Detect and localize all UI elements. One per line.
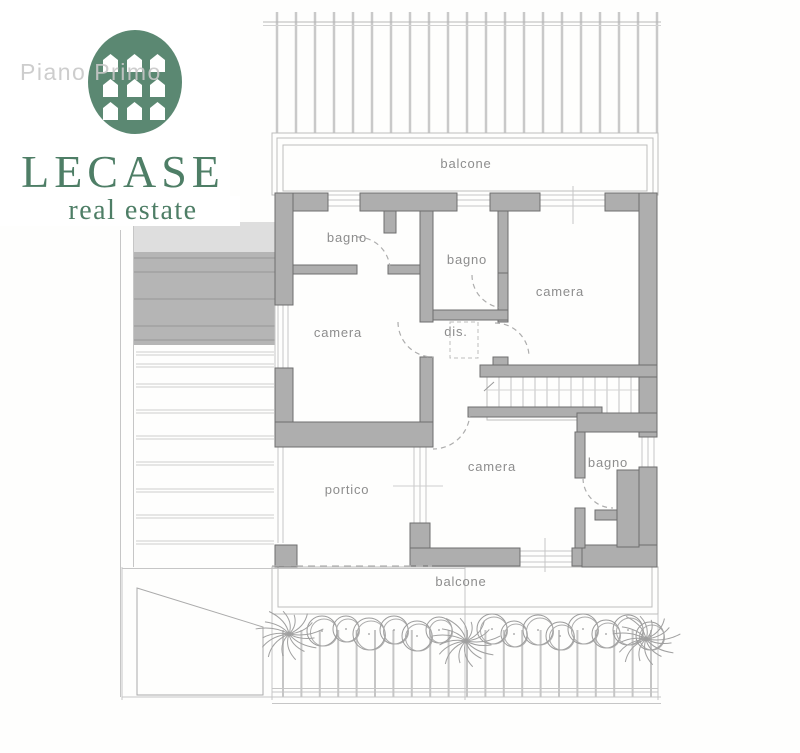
room-label-bagno-top-left: bagno [327,230,367,245]
room-label-balcone-top: balcone [440,156,491,171]
room-label-balcone-bottom: balcone [435,574,486,589]
brand-name: LECASE [21,146,225,197]
room-label-portico: portico [325,482,370,497]
brand-tagline: real estate [68,195,197,226]
room-label-bagno-top-mid: bagno [447,252,487,267]
floorplan-svg: balcone bagno bagno camera camera dis. c… [0,0,800,753]
room-label-dis: dis. [444,324,467,339]
room-label-camera-left: camera [314,325,362,340]
room-label-camera-bottom: camera [468,459,516,474]
room-label-camera-right: camera [536,284,584,299]
pergola-slats [277,12,657,133]
floorplan-image: balcone bagno bagno camera camera dis. c… [0,0,800,753]
floor-watermark: Piano Primo [20,59,162,85]
agency-logo: Piano Primo LECASE real estate [0,0,240,226]
room-label-bagno-bottom: bagno [588,455,628,470]
